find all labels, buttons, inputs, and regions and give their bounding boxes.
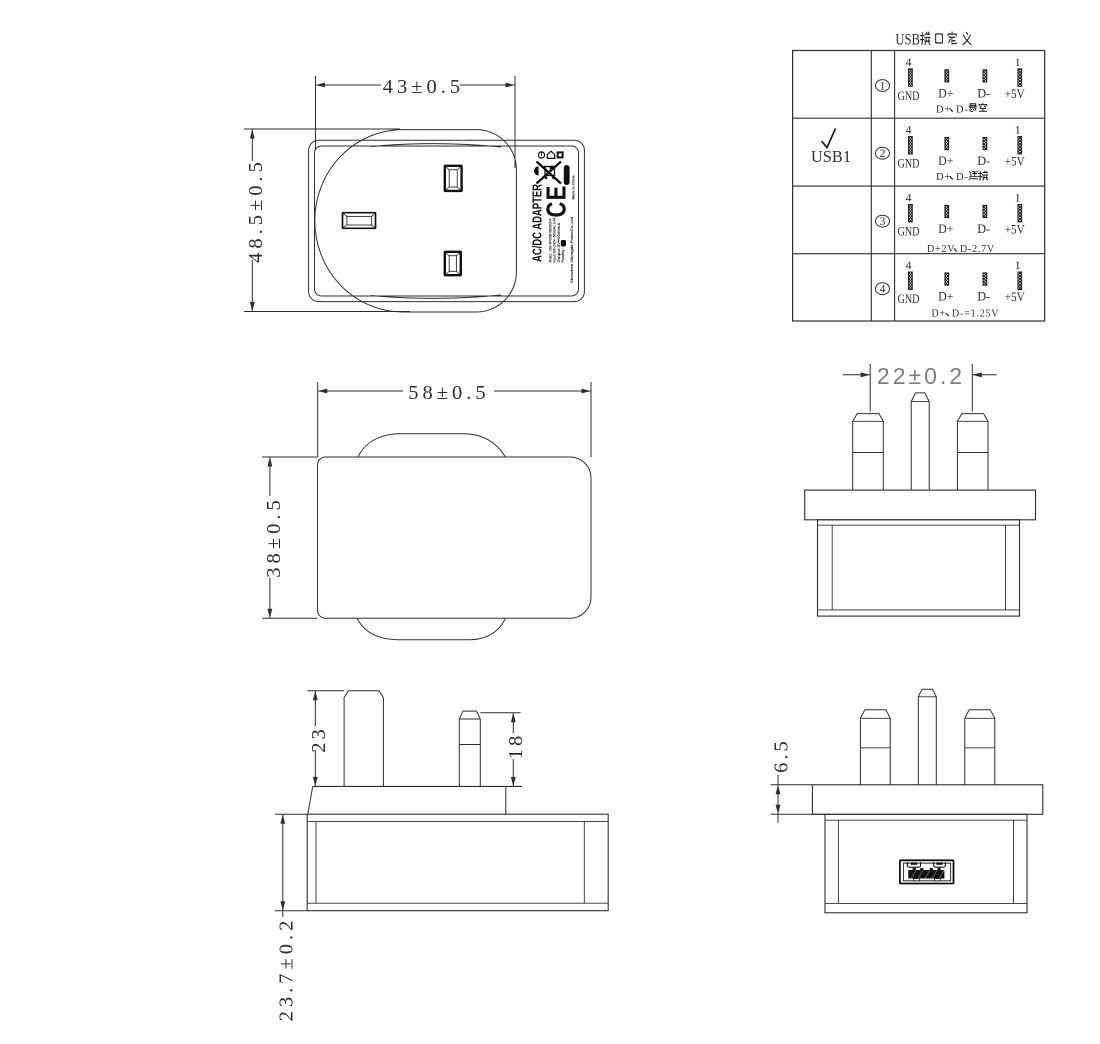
svg-text:38±0.5: 38±0.5 — [263, 496, 285, 577]
svg-text:D-=1.25V: D-=1.25V — [952, 309, 999, 320]
svg-text:1: 1 — [1015, 191, 1021, 205]
svg-text:2: 2 — [880, 148, 886, 160]
svg-text:23.7±0.2: 23.7±0.2 — [275, 917, 297, 1022]
svg-text:1: 1 — [1015, 55, 1021, 69]
svg-text:Polarity:: Polarity: — [560, 249, 565, 263]
svg-text:D+: D+ — [938, 87, 953, 101]
svg-text:+5V: +5V — [1005, 223, 1025, 237]
svg-text:GND: GND — [898, 225, 920, 239]
svg-text:3: 3 — [880, 216, 886, 228]
svg-text:D+: D+ — [932, 309, 946, 320]
svg-text:4: 4 — [906, 55, 912, 69]
svg-text:1: 1 — [1015, 258, 1021, 272]
svg-text:D+: D+ — [938, 154, 953, 168]
svg-text:D-2.7V: D-2.7V — [960, 244, 995, 255]
svg-text:+5V: +5V — [1005, 290, 1025, 304]
svg-text:1: 1 — [880, 80, 886, 92]
svg-text:D-: D- — [956, 104, 969, 115]
svg-text:18: 18 — [505, 733, 527, 760]
svg-text:USB1: USB1 — [811, 147, 851, 166]
svg-text:4: 4 — [906, 123, 912, 137]
svg-text:4: 4 — [880, 284, 886, 296]
svg-text:D+: D+ — [938, 290, 953, 304]
svg-text:D-: D- — [956, 172, 969, 183]
svg-text:D-: D- — [977, 87, 990, 101]
svg-text:GND: GND — [898, 292, 920, 306]
svg-text:43±0.5: 43±0.5 — [383, 76, 464, 98]
svg-text:58±0.5: 58±0.5 — [408, 382, 489, 404]
svg-text:CE: CE — [541, 185, 572, 218]
svg-text:D-: D- — [977, 154, 990, 168]
svg-text:USB: USB — [895, 31, 920, 48]
svg-text:22±0.2: 22±0.2 — [877, 363, 965, 389]
svg-text:D+: D+ — [938, 222, 953, 236]
svg-text:D+: D+ — [936, 104, 951, 115]
svg-text:+5V: +5V — [1005, 87, 1025, 101]
svg-text:6.5: 6.5 — [771, 738, 793, 773]
svg-text:Shenzhen Jihongda PowerCo.,Ltd: Shenzhen Jihongda PowerCo.,Ltd — [570, 217, 574, 283]
svg-text:Made in China: Made in China — [572, 175, 576, 200]
svg-text:D+2V: D+2V — [927, 244, 955, 255]
svg-text:+5V: +5V — [1005, 155, 1025, 169]
svg-text:GND: GND — [898, 157, 920, 171]
svg-text:4: 4 — [906, 191, 912, 205]
svg-text:4: 4 — [906, 258, 912, 272]
svg-text:48.5±0.5: 48.5±0.5 — [245, 158, 267, 263]
svg-text:GND: GND — [898, 89, 920, 103]
svg-text:D-: D- — [977, 290, 990, 304]
svg-text:D+: D+ — [936, 172, 951, 183]
svg-text:D-: D- — [977, 222, 990, 236]
svg-text:1: 1 — [1015, 123, 1021, 137]
svg-text:23: 23 — [308, 726, 330, 753]
